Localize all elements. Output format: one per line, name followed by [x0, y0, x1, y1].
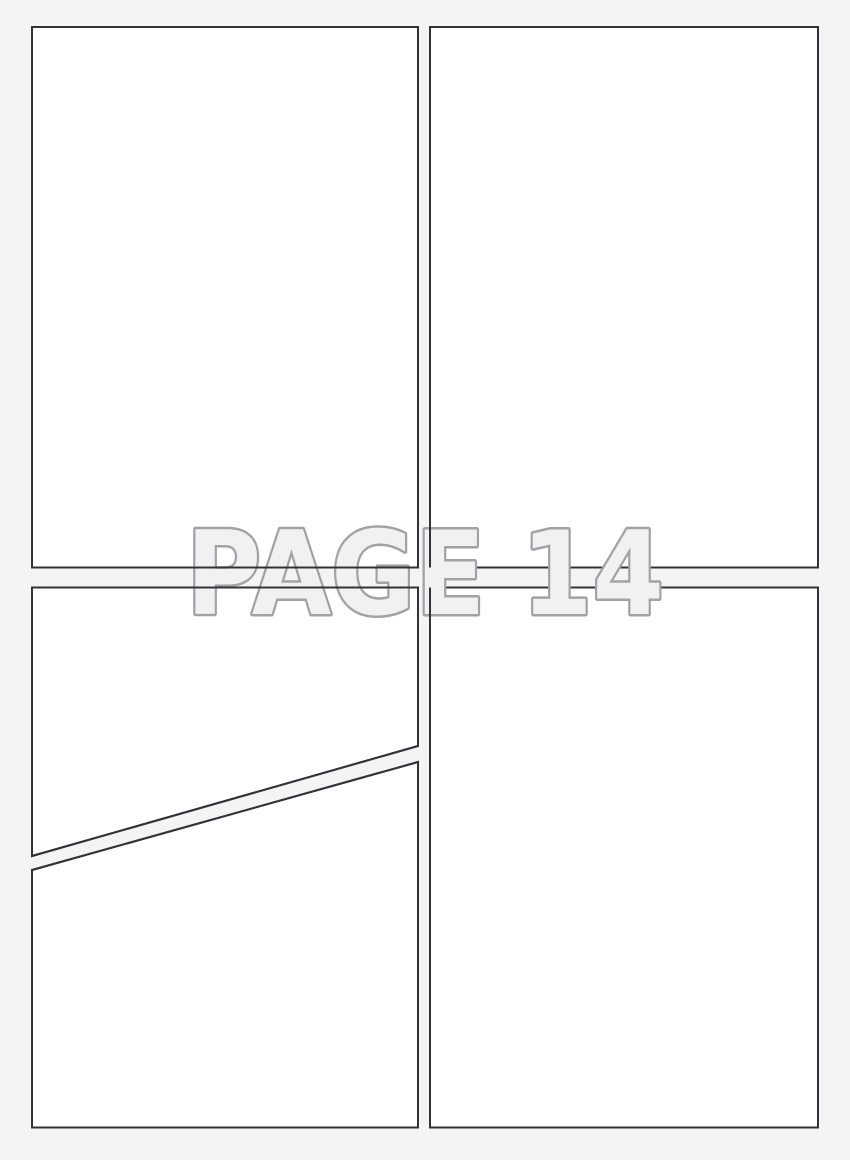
page-number-watermark: PAGE 14: [186, 507, 664, 642]
comic-page-canvas: PAGE 14: [0, 0, 850, 1160]
panel-top-left: [32, 27, 418, 568]
panel-bottom-right: [430, 588, 818, 1128]
panel-top-right: [430, 27, 818, 568]
comic-page-template: PAGE 14: [0, 0, 850, 1160]
